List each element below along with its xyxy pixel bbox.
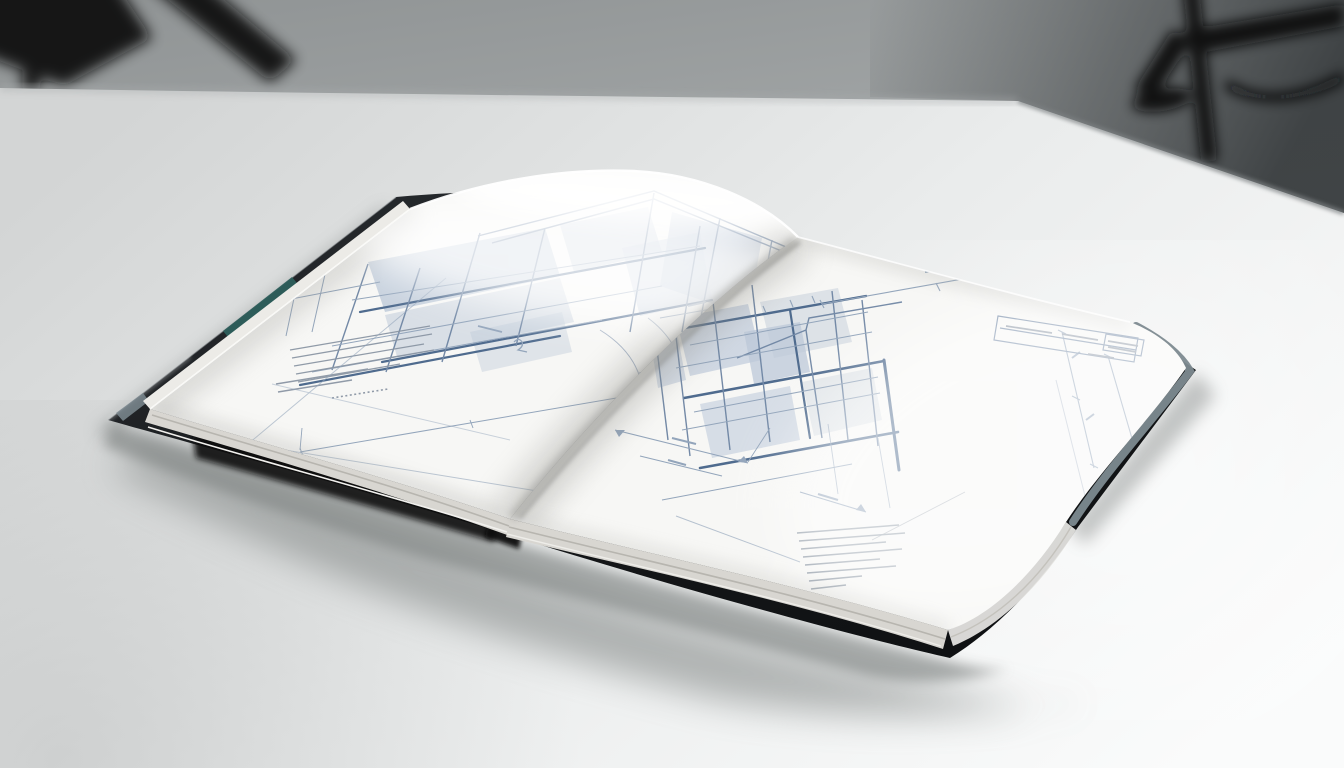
studio-photograph xyxy=(0,0,1344,768)
tripod-knob xyxy=(1185,23,1207,45)
photo-scene: Studio photograph of an open hardcover b… xyxy=(0,0,1344,768)
